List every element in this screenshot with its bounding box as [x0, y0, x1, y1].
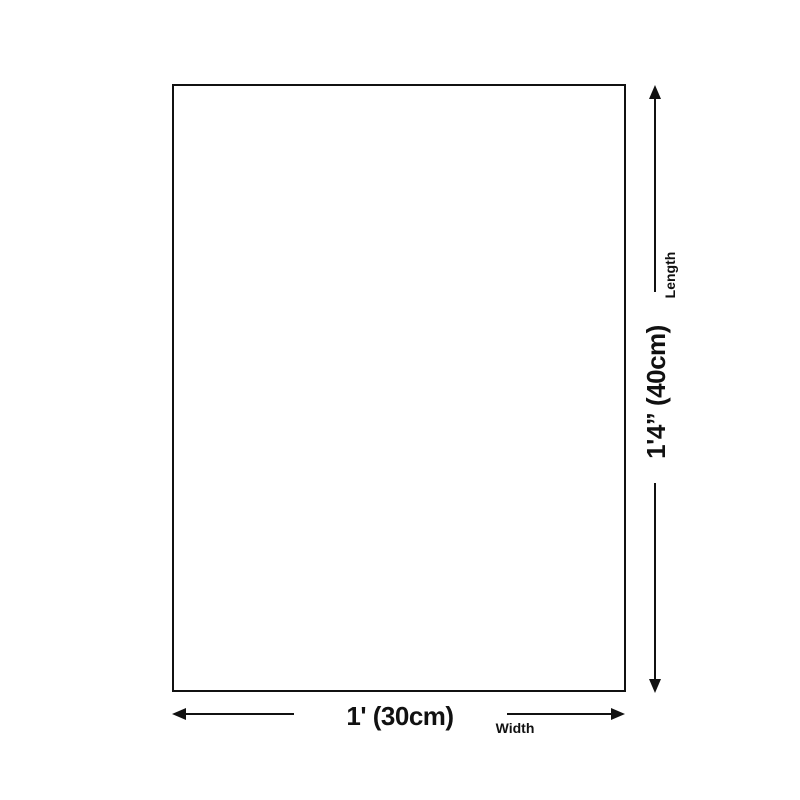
length-axis-label: Length [663, 252, 677, 299]
width-dimension-line-right [507, 713, 613, 715]
arrow-right-icon [611, 708, 625, 720]
width-axis-label: Width [496, 721, 535, 735]
width-dimension-line-left [185, 713, 294, 715]
arrow-up-icon [649, 85, 661, 99]
length-value-label: 1'4” (40cm) [643, 325, 669, 459]
product-outline-rect [172, 84, 626, 692]
arrow-left-icon [172, 708, 186, 720]
size-diagram: 1'4” (40cm) Length 1' (30cm) Width [0, 0, 800, 800]
length-dimension-line-bottom [654, 483, 656, 679]
width-value-label: 1' (30cm) [346, 703, 453, 729]
arrow-down-icon [649, 679, 661, 693]
length-dimension-line-top [654, 98, 656, 292]
